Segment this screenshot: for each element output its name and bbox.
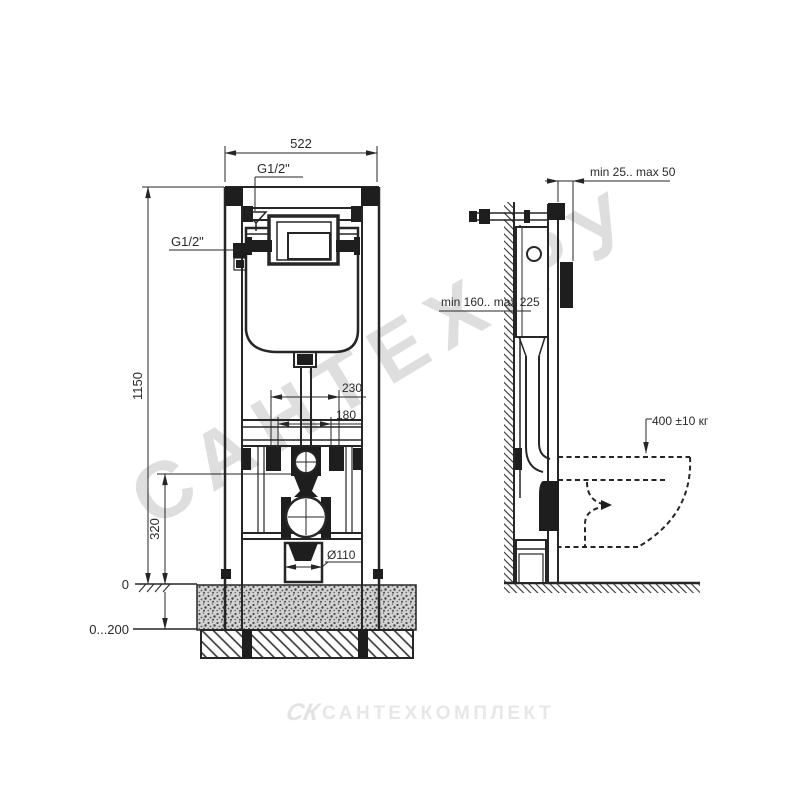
frame-corner-block-right — [361, 187, 379, 206]
company-name: САНТЕХКОМПЛЕКТ — [322, 703, 554, 724]
dim-depth-range-label: min 160.. max 225 — [441, 295, 540, 309]
fixing-stud-right — [329, 447, 344, 471]
label-inlet-side: G1/2" — [169, 234, 240, 250]
floor-range-label: 0...200 — [89, 622, 129, 637]
floor-slab — [201, 630, 413, 658]
company-logo: СК — [284, 699, 324, 726]
toilet-bowl-outline — [558, 457, 690, 547]
diagonal-watermark: САНТЕХ.РУ — [116, 170, 657, 544]
inspection-window — [288, 233, 330, 259]
zero-level: 0 — [122, 577, 197, 592]
frame-foot — [516, 540, 546, 583]
dim-230-label: 230 — [342, 381, 362, 395]
fixing-stud-left — [266, 447, 281, 471]
dim-drain-diameter-label: Ø110 — [327, 548, 356, 562]
flush-plate — [560, 262, 573, 308]
svg-text:G1/2": G1/2" — [171, 234, 204, 249]
load-capacity-callout: 400 ±10 кг — [646, 414, 709, 453]
wall-hatch — [504, 202, 514, 583]
technical-drawing-page: { "front_view": { "width_top": "522", "i… — [0, 0, 800, 800]
frame-corner-block-left — [225, 187, 243, 206]
ground-hatch — [504, 584, 700, 593]
dimension-depth-range: min 160.. max 225 — [439, 295, 540, 311]
dim-180-label: 180 — [336, 408, 356, 422]
drain-elbow — [539, 481, 559, 531]
cistern-side — [516, 227, 550, 472]
anchor-bolt-right — [358, 629, 368, 658]
dimension-frame-width: 522 — [225, 136, 377, 182]
zero-level-label: 0 — [122, 577, 129, 592]
dim-wall-gap-label: min 25.. max 50 — [590, 165, 676, 179]
dim-height-label: 1150 — [130, 372, 145, 400]
anchor-bolt-left — [242, 629, 252, 658]
installation-frame-drawing: САНТЕХ.РУ — [0, 0, 800, 800]
floor-screed — [197, 585, 416, 630]
load-capacity-label: 400 ±10 кг — [652, 414, 709, 428]
svg-text:G1/2": G1/2" — [257, 161, 290, 176]
bottom-watermark: СК САНТЕХКОМПЛЕКТ — [284, 699, 554, 726]
dim-frame-width-label: 522 — [290, 136, 312, 151]
floor-range-level: 0...200 — [89, 622, 197, 637]
wall-bracket — [548, 203, 565, 220]
dim-valve-height-label: 320 — [147, 518, 162, 540]
flow-arrow — [601, 500, 612, 510]
